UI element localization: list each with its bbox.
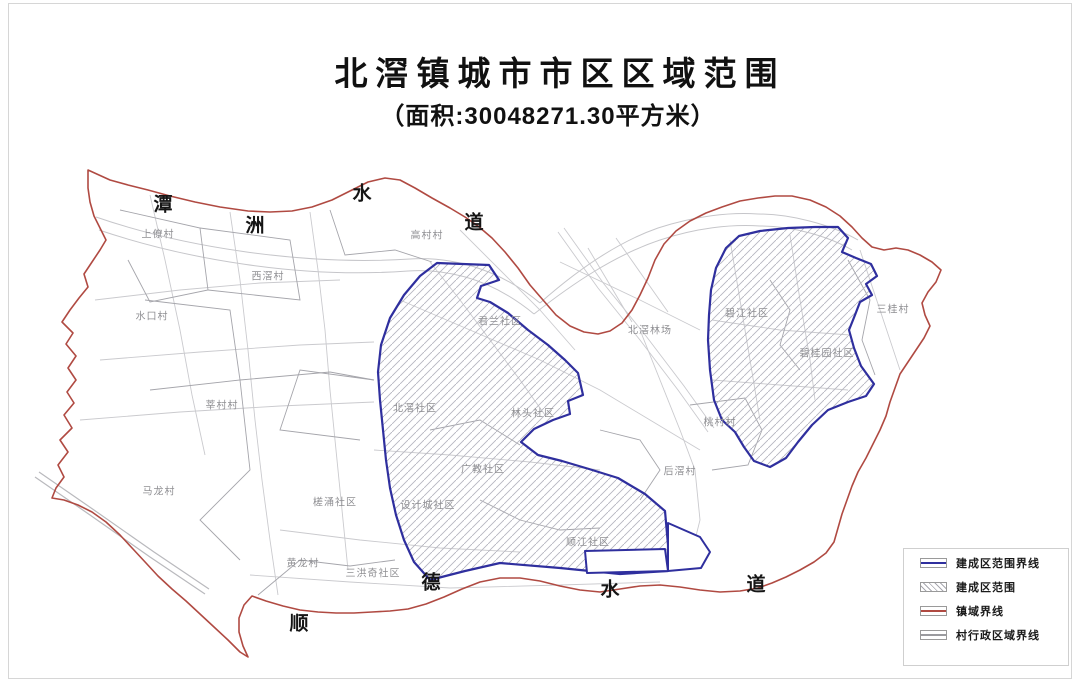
legend-swatch-hatch [920,582,947,592]
built-up-area-2 [708,227,877,467]
railway-line [35,472,209,594]
legend-item: 建成区范围界线 [920,557,1068,569]
built-up-area-1 [378,263,668,580]
legend-rows: 建成区范围界线建成区范围镇域界线村行政区域界线 [920,557,1068,641]
legend-label: 建成区范围界线 [956,555,1040,571]
legend-label: 建成区范围 [956,579,1016,595]
legend-label: 村行政区域界线 [956,627,1040,643]
legend-item: 村行政区域界线 [920,629,1068,641]
legend-swatch-red-line [920,606,947,616]
legend: 建成区范围界线建成区范围镇域界线村行政区域界线 [903,548,1069,666]
legend-swatch-blue-line [920,558,947,568]
legend-swatch-gray-line [920,630,947,640]
legend-item: 镇域界线 [920,605,1068,617]
legend-label: 镇域界线 [956,603,1004,619]
legend-item: 建成区范围 [920,581,1068,593]
map-page: 北滘镇城市市区区域范围 （面积:30048271.30平方米） [0,0,1080,683]
